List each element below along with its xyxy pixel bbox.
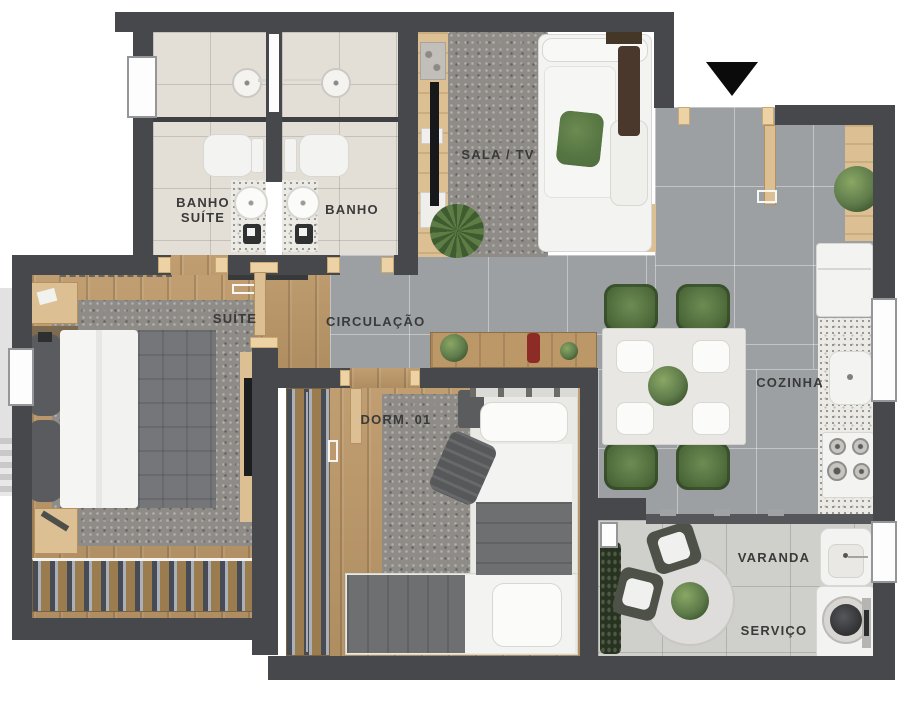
entrance-arrow-icon [706,62,758,96]
dining-chair-2 [676,284,730,332]
door-post-entry-l [678,107,690,125]
wall-bath-sala [398,32,418,255]
tv-screen [430,82,439,206]
door-post-bath-r [381,257,394,273]
balcony-stub-window [600,522,618,548]
room-label-circulacao: CIRCULAÇÃO [326,315,422,330]
wall-dorm-right [580,388,598,658]
fridge [816,243,873,317]
wall-dorm-top-right [420,368,598,388]
shower-glass-right [282,117,398,122]
single-bed-2-pillow [492,583,562,647]
single-bed-2-blanket [347,575,465,653]
bathroom-window [127,56,157,118]
balcony-table-plant [671,582,709,620]
double-bed-pillow-2 [28,420,62,502]
door-post-entry-r [762,107,774,125]
stove-burner-4 [853,463,870,480]
sideboard-plant [440,334,468,362]
suite-overhead-cabinet-dashed [60,275,172,281]
floor-plan: BANHO SUÍTE BANHO SALA / TV SUÍTE CIRCUL… [0,0,910,721]
door-post-bath-suite-l [158,257,171,273]
dining-chair-4 [676,442,730,490]
door-post-suite-bottom [250,337,278,348]
stove-burner-2 [852,438,869,455]
place-setting-4 [692,402,730,435]
place-setting-1 [616,340,654,373]
wall-balcony-stub [580,498,646,520]
toilet-tank-right [284,138,297,173]
wall-top [115,12,674,32]
brown-throw [618,46,640,136]
room-label-banho: BANHO [315,203,389,218]
wall-bath-bottom-b [228,255,340,275]
shower-arm-left [258,79,266,82]
balcony-chair-2-seat [621,577,655,611]
wall-suite-dorm [252,348,278,655]
room-label-banho-suite: BANHO SUÍTE [158,196,248,226]
fire-extinguisher [527,333,540,363]
toilet-tank-left [251,138,264,173]
single-bed-1-blanket [476,502,572,582]
toilet-right [299,134,349,177]
toilet-left [203,134,253,177]
shower-glass-left [153,117,266,122]
wall-suite-bottom [12,618,270,640]
suite-tv-screen [244,378,252,476]
sala-plant [430,204,484,258]
sideboard-plant-small [560,342,578,360]
dining-chair-1 [604,284,658,332]
suite-wardrobe [32,558,254,612]
double-bed-quilt [138,330,216,508]
bath-accessory-left-towel [247,228,255,236]
sliding-door-tab-2 [714,509,730,516]
balcony-sliding-door [646,514,873,524]
laundry-sink-basin [828,544,864,578]
service-window [871,521,897,583]
single-bed-1-pillow [480,402,568,442]
wall-shelf-dark [606,30,642,44]
wall-entry-top [775,105,873,125]
wall-sala-right [654,32,674,108]
entry-door-handle [757,190,777,203]
door-post-bath-suite-r [215,257,228,273]
washer-drum [830,604,862,636]
wall-dorm-top-left [268,368,350,388]
shower-arm-right [284,79,321,81]
bath-accessory-right-towel [299,228,307,236]
balcony-chair-1-seat [656,530,691,565]
room-label-cozinha: COZINHA [752,376,828,391]
room-label-sala-tv: SALA / TV [452,148,544,163]
shower-head-right [321,68,351,98]
fridge-door-line [818,268,871,270]
shower-head-left [232,68,262,98]
kitchen-faucet [847,374,853,380]
hall-bench-handle [232,284,256,294]
place-setting-3 [616,402,654,435]
dining-chair-3 [604,442,658,490]
place-setting-2 [692,340,730,373]
low-shelf-decor [38,332,52,342]
door-post-dorm-r [410,370,420,386]
double-bed-duvet [60,330,138,508]
table-centerpiece-plant [648,366,688,406]
wall-bath-bottom-c [394,255,418,275]
room-label-dorm-01: DORM. 01 [354,413,438,428]
room-label-varanda: VARANDA [734,551,814,566]
stove-burner-3 [827,461,847,481]
stove-burner-1 [829,438,846,455]
speaker-box [420,42,446,80]
room-label-servico: SERVIÇO [734,624,814,639]
door-post-dorm-l [340,370,350,386]
sliding-door-tab-3 [768,509,784,516]
kitchen-window [871,298,897,402]
room-label-suite: SUÍTE [203,312,267,327]
suite-window [8,348,34,406]
dorm-closet-handle [328,440,338,462]
wall-bottom [268,656,895,680]
door-post-bath-l [327,257,340,273]
dorm-closet-rail [306,392,308,652]
wall-suite-left [12,255,32,640]
green-pillow [555,110,604,168]
sliding-door-tab-1 [660,509,676,516]
laundry-faucet-arm [848,556,868,558]
bath-divider-glass [269,34,279,112]
dorm-closet [286,388,330,656]
washer-panel-display [864,610,869,636]
